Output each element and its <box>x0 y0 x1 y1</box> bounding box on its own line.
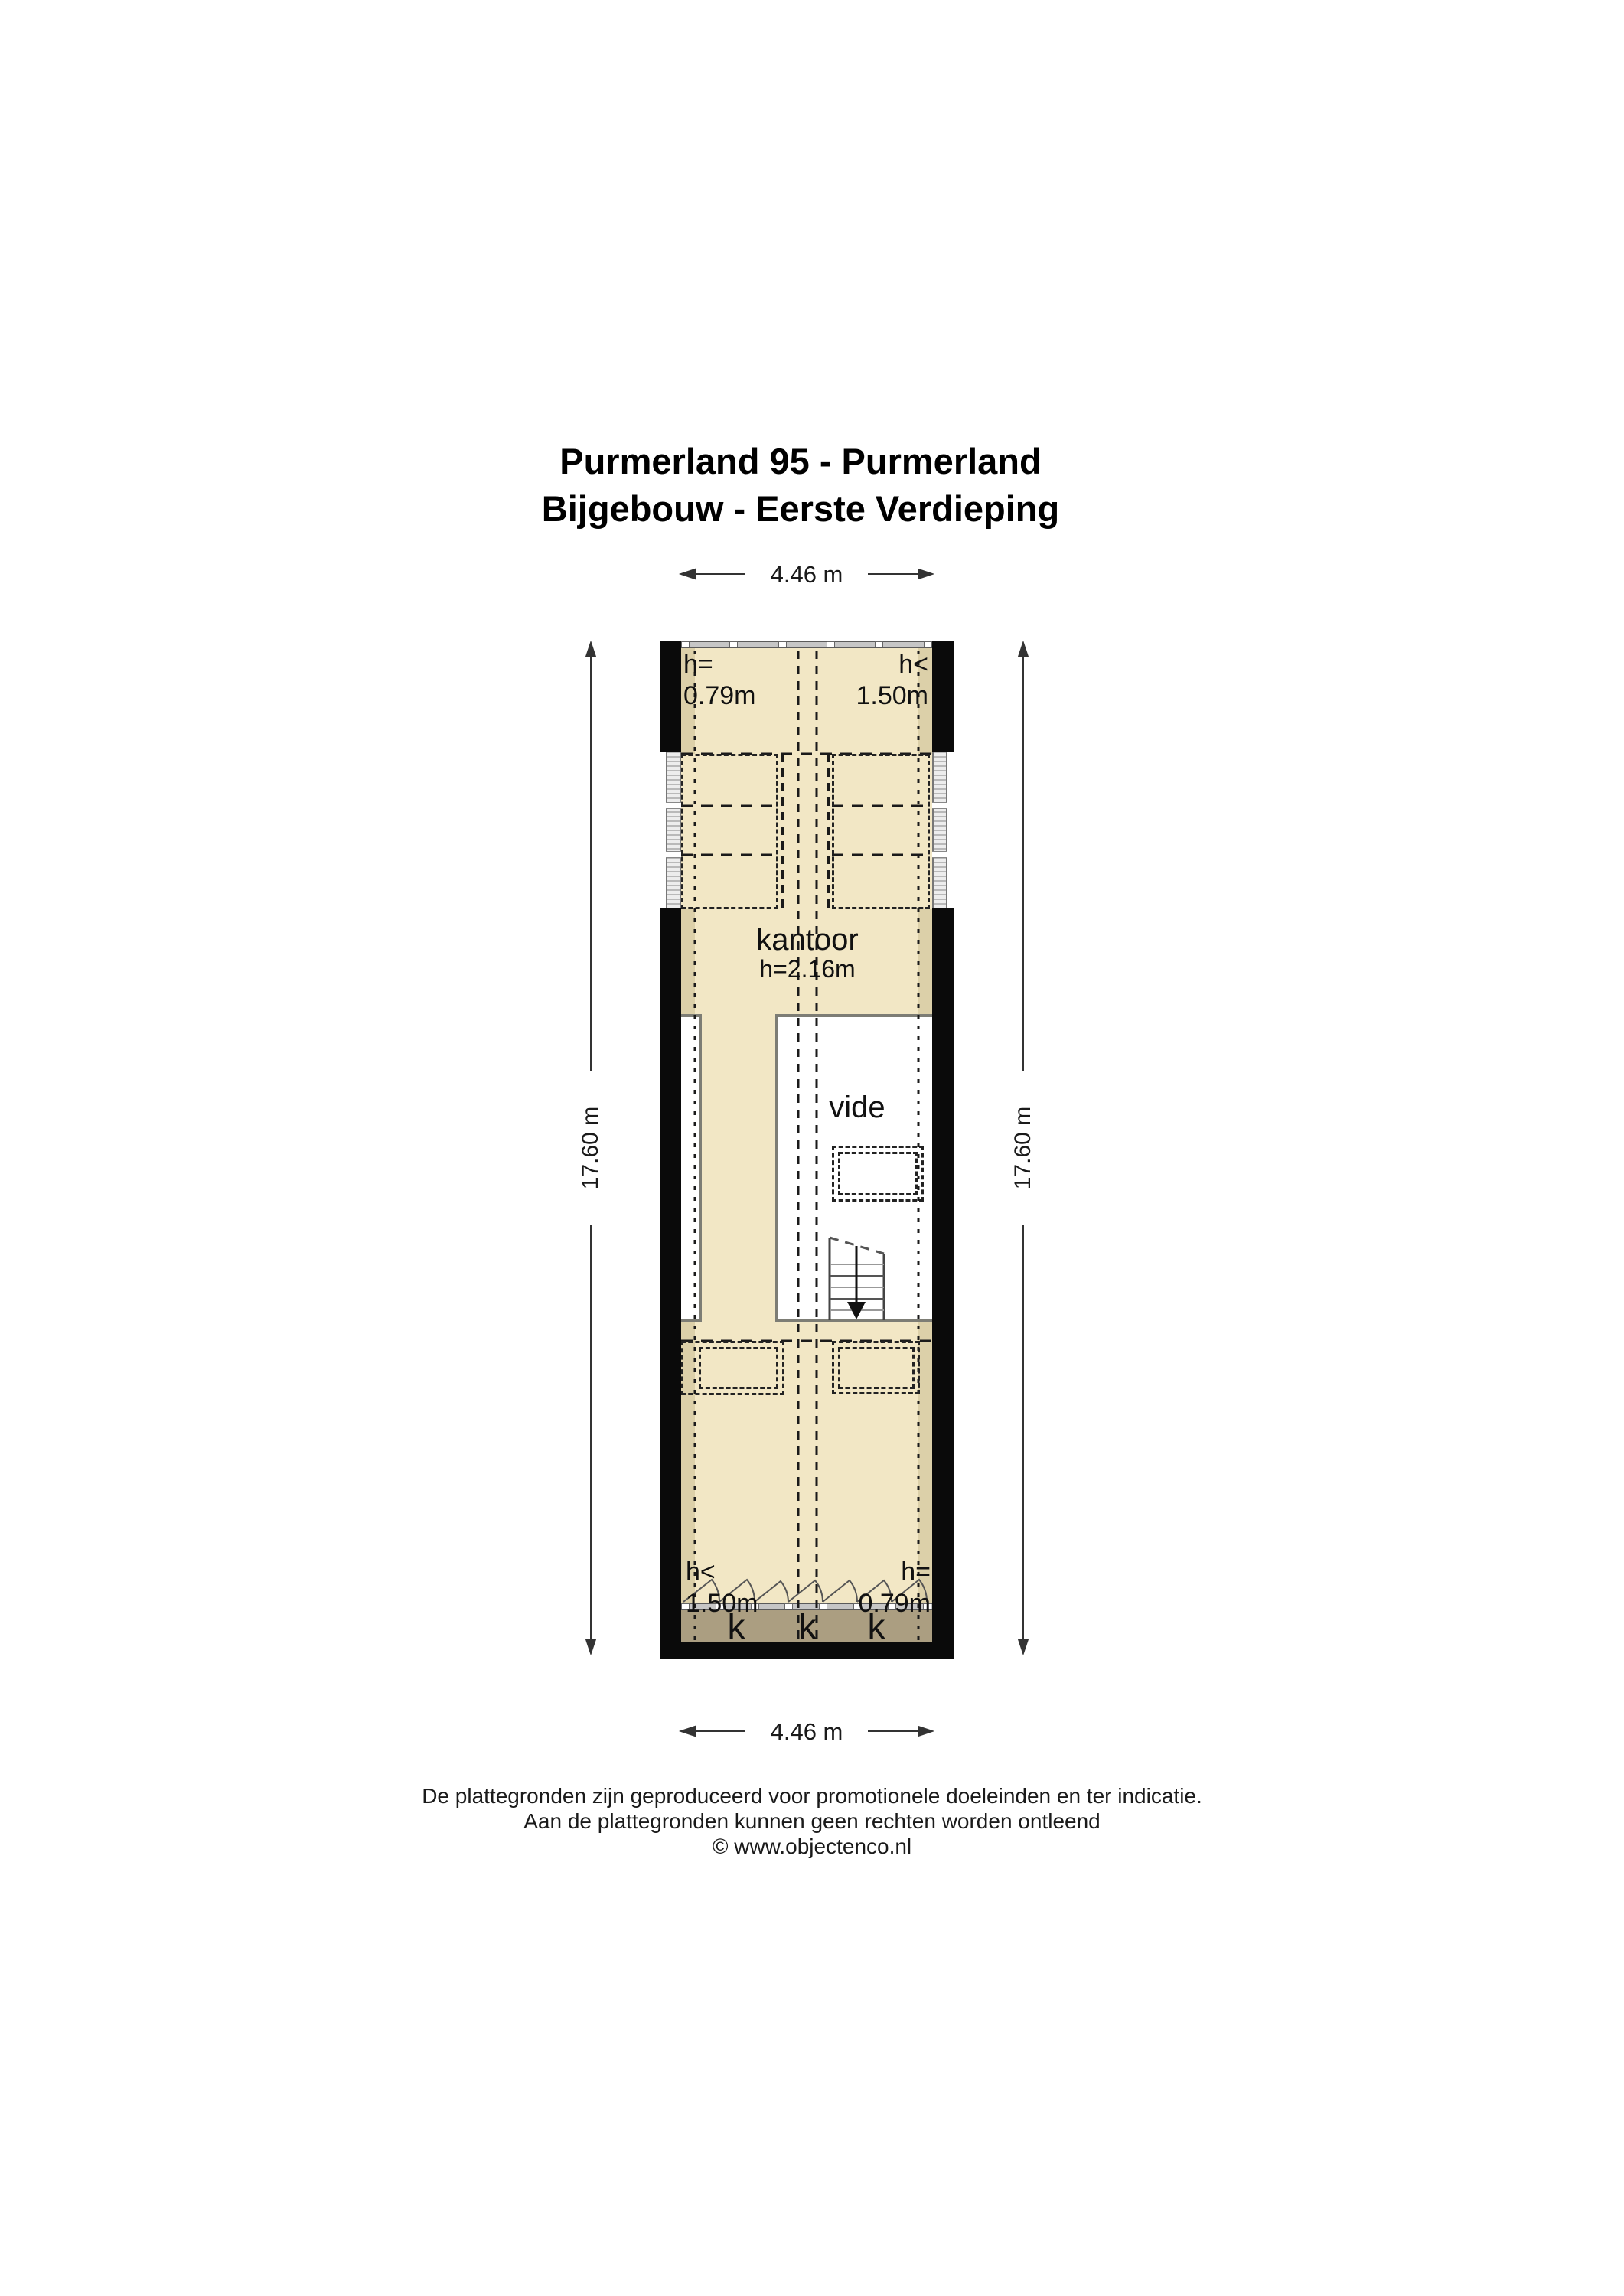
height-annotation-top-right: h< 1.50m <box>829 649 928 712</box>
dimension-width-top: 4.46 m <box>745 561 868 589</box>
closet-label: k <box>784 1606 830 1647</box>
plan-linework <box>0 0 1624 2296</box>
roof-window-right-inner <box>838 1347 915 1389</box>
height-annotation-line: h< <box>829 649 928 680</box>
dimension-height-right: 17.60 m <box>1008 1071 1039 1225</box>
room-height-kantoor: h=2.16m <box>731 955 884 983</box>
height-annotation-line: 1.50m <box>829 680 928 712</box>
disclaimer-line2: Aan de plattegronden kunnen geen rechten… <box>0 1808 1624 1834</box>
attic-closet-right <box>832 754 930 909</box>
attic-closet-left <box>681 754 778 909</box>
room-label-vide: vide <box>781 1091 934 1125</box>
height-annotation-line: h= <box>831 1557 931 1588</box>
closet-label: k <box>853 1606 899 1647</box>
floorplan-page: Purmerland 95 - Purmerland Bijgebouw - E… <box>0 0 1624 2296</box>
closet-label: k <box>713 1606 759 1647</box>
disclaimer-line1: De plattegronden zijn geproduceerd voor … <box>0 1783 1624 1808</box>
copyright: © www.objectenco.nl <box>0 1834 1624 1859</box>
height-annotation-top-left: h= 0.79m <box>683 649 783 712</box>
vide-opening-inner <box>838 1152 918 1195</box>
room-label-kantoor: kantoor <box>731 923 884 957</box>
disclaimer: De plattegronden zijn geproduceerd voor … <box>0 1783 1624 1859</box>
height-annotation-line: h< <box>686 1557 785 1588</box>
height-annotation-line: h= <box>683 649 783 680</box>
dimension-lines <box>586 569 1028 1736</box>
dimension-width-bottom: 4.46 m <box>745 1718 868 1746</box>
dimension-height-left: 17.60 m <box>576 1071 606 1225</box>
stairs <box>830 1238 884 1320</box>
height-annotation-line: 0.79m <box>683 680 783 712</box>
roof-window-left-inner <box>699 1347 778 1389</box>
